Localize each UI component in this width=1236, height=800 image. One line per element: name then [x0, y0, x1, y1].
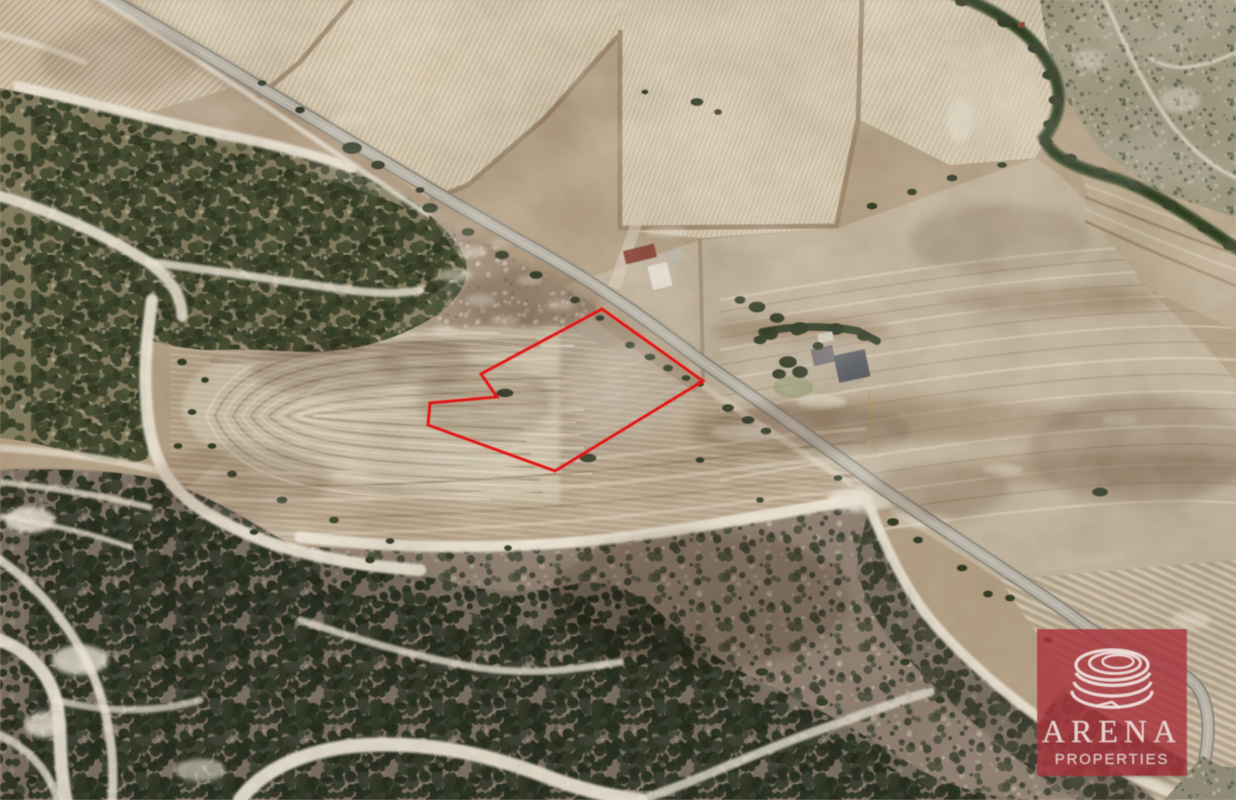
- svg-text:PROPERTIES: PROPERTIES: [1055, 751, 1169, 768]
- svg-text:Imagery ©2025 Airbus: Imagery ©2025 Airbus: [601, 789, 676, 798]
- svg-text:ARENA: ARENA: [1042, 713, 1182, 749]
